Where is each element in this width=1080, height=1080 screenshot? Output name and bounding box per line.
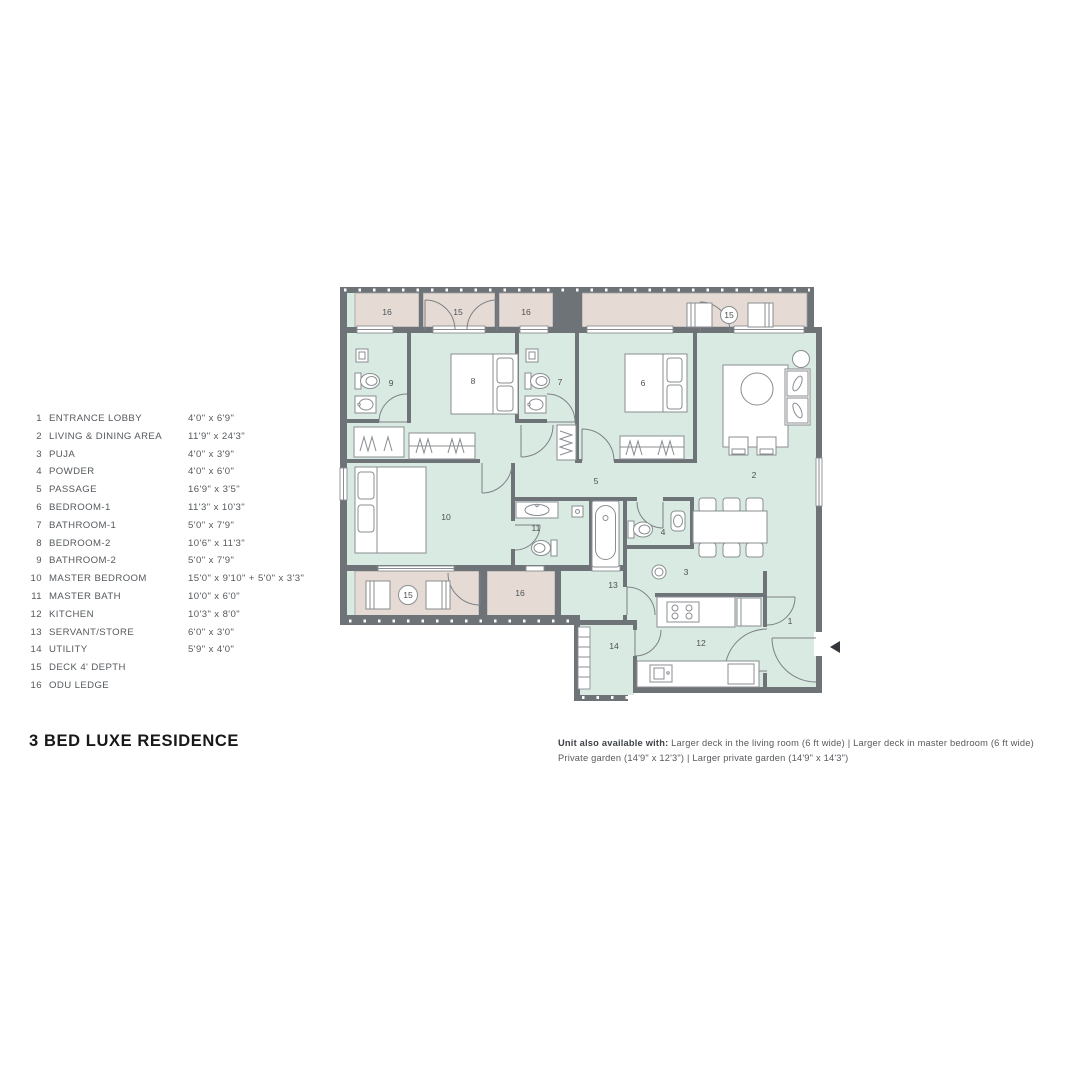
legend-room-number: 13 [30, 627, 42, 638]
legend-room-name: PUJA [49, 449, 75, 460]
legend-room-name: MASTER BEDROOM [49, 573, 147, 584]
bed-master [355, 467, 426, 553]
label-deck-top-left: 15 [453, 307, 463, 317]
legend-room-number: 11 [30, 591, 42, 602]
legend-room-name: KITCHEN [49, 609, 94, 620]
legend-row: 11 MASTER BATH 10'0" x 6'0" [30, 591, 330, 609]
legend-room-name: POWDER [49, 466, 95, 477]
entry-arrow-icon [830, 641, 840, 653]
label-servant: 13 [608, 580, 618, 590]
legend-room-dims: 15'0" x 9'10" + 5'0" x 3'3" [188, 573, 304, 584]
legend-room-name: LIVING & DINING AREA [49, 431, 162, 442]
note-bold: Unit also available with: [558, 738, 668, 748]
legend-room-name: ODU LEDGE [49, 680, 109, 691]
legend-room-dims: 4'0" x 6'9" [188, 413, 234, 424]
deck-label-circle-top: 15 [724, 310, 734, 320]
note-line1-rest: Larger deck in the living room (6 ft wid… [668, 738, 1034, 748]
legend-row: 3 PUJA 4'0" x 3'9" [30, 449, 330, 467]
legend-room-dims: 10'3" x 8'0" [188, 609, 240, 620]
legend-room-name: UTILITY [49, 644, 88, 655]
legend-room-dims: 11'9" x 24'3" [188, 431, 245, 442]
deck-label-circle-bottom: 15 [403, 590, 413, 600]
legend-row: 7 BATHROOM-1 5'0" x 7'9" [30, 520, 330, 538]
label-bedroom2: 8 [471, 376, 476, 386]
label-powder: 4 [661, 527, 666, 537]
legend-room-number: 2 [30, 431, 42, 442]
legend-room-number: 7 [30, 520, 42, 531]
legend-row: 14 UTILITY 5'9" x 4'0" [30, 644, 330, 662]
legend-row: 8 BEDROOM-2 10'6" x 11'3" [30, 538, 330, 556]
label-bathroom1: 7 [558, 377, 563, 387]
legend-room-name: BEDROOM-2 [49, 538, 111, 549]
legend-room-dims: 10'6" x 11'3" [188, 538, 245, 549]
availability-note: Unit also available with: Larger deck in… [558, 736, 1050, 765]
legend-room-dims: 4'0" x 6'0" [188, 466, 234, 477]
legend-room-dims: 11'3" x 10'3" [188, 502, 245, 513]
legend-row: 15 DECK 4' DEPTH [30, 662, 330, 680]
label-entrance: 1 [788, 616, 793, 626]
legend-room-dims: 16'9" x 3'5" [188, 484, 240, 495]
legend-room-dims: 5'0" x 7'9" [188, 520, 234, 531]
legend-room-name: ENTRANCE LOBBY [49, 413, 142, 424]
floorplan-page: 1 ENTRANCE LOBBY 4'0" x 6'9" 2 LIVING & … [0, 0, 1080, 1080]
legend-row: 5 PASSAGE 16'9" x 3'5" [30, 484, 330, 502]
bed-bedroom2 [451, 354, 518, 414]
label-kitchen: 12 [696, 638, 706, 648]
legend-room-number: 10 [30, 573, 42, 584]
legend-row: 12 KITCHEN 10'3" x 8'0" [30, 609, 330, 627]
note-line-2: Private garden (14'9" x 12'3") | Larger … [558, 751, 1050, 766]
bed-bedroom1 [625, 354, 687, 412]
label-utility: 14 [609, 641, 619, 651]
legend-room-name: DECK 4' DEPTH [49, 662, 126, 673]
floor-plan: 15 15 16 15 16 9 8 7 6 2 5 10 11 4 3 13 … [330, 275, 850, 705]
legend-room-name: MASTER BATH [49, 591, 121, 602]
legend-room-name: BATHROOM-1 [49, 520, 116, 531]
dining-set [693, 498, 767, 557]
note-line-1: Unit also available with: Larger deck in… [558, 736, 1050, 751]
legend-row: 1 ENTRANCE LOBBY 4'0" x 6'9" [30, 413, 330, 431]
label-master-bedroom: 10 [441, 512, 451, 522]
legend-room-name: BATHROOM-2 [49, 555, 116, 566]
legend-room-name: SERVANT/STORE [49, 627, 134, 638]
legend-row: 9 BATHROOM-2 5'0" x 7'9" [30, 555, 330, 573]
legend-room-name: PASSAGE [49, 484, 97, 495]
label-puja: 3 [684, 567, 689, 577]
legend-row: 4 POWDER 4'0" x 6'0" [30, 466, 330, 484]
legend-room-dims: 5'9" x 4'0" [188, 644, 234, 655]
legend-row: 6 BEDROOM-1 11'3" x 10'3" [30, 502, 330, 520]
legend-room-number: 3 [30, 449, 42, 460]
label-master-bath: 11 [532, 523, 541, 533]
legend-room-dims: 10'0" x 6'0" [188, 591, 240, 602]
deck-bottom-furniture: 15 [366, 581, 450, 609]
legend-room-number: 12 [30, 609, 42, 620]
legend-row: 16 ODU LEDGE [30, 680, 330, 698]
legend-room-number: 4 [30, 466, 42, 477]
page-title: 3 BED LUXE RESIDENCE [29, 732, 239, 751]
legend-room-number: 9 [30, 555, 42, 566]
legend-row: 10 MASTER BEDROOM 15'0" x 9'10" + 5'0" x… [30, 573, 330, 591]
label-odu-top-mid: 16 [521, 307, 531, 317]
legend-room-dims: 5'0" x 7'9" [188, 555, 234, 566]
legend-room-number: 14 [30, 644, 42, 655]
label-bathroom2: 9 [389, 378, 394, 388]
legend-room-number: 8 [30, 538, 42, 549]
wash-basin [652, 565, 666, 579]
legend-room-name: BEDROOM-1 [49, 502, 111, 513]
legend-row: 13 SERVANT/STORE 6'0" x 3'0" [30, 627, 330, 645]
deck-top-furniture: 15 [687, 303, 773, 327]
legend-room-dims: 6'0" x 3'0" [188, 627, 234, 638]
legend-row: 2 LIVING & DINING AREA 11'9" x 24'3" [30, 431, 330, 449]
label-odu-top-left: 16 [382, 307, 392, 317]
legend-room-number: 5 [30, 484, 42, 495]
legend-room-number: 6 [30, 502, 42, 513]
label-bedroom1: 6 [641, 378, 646, 388]
legend-room-number: 15 [30, 662, 42, 673]
legend-room-number: 1 [30, 413, 42, 424]
label-living: 2 [752, 470, 757, 480]
label-odu-bottom: 16 [515, 588, 525, 598]
legend-room-number: 16 [30, 680, 42, 691]
label-passage: 5 [594, 476, 599, 486]
legend: 1 ENTRANCE LOBBY 4'0" x 6'9" 2 LIVING & … [30, 413, 330, 698]
legend-room-dims: 4'0" x 3'9" [188, 449, 234, 460]
